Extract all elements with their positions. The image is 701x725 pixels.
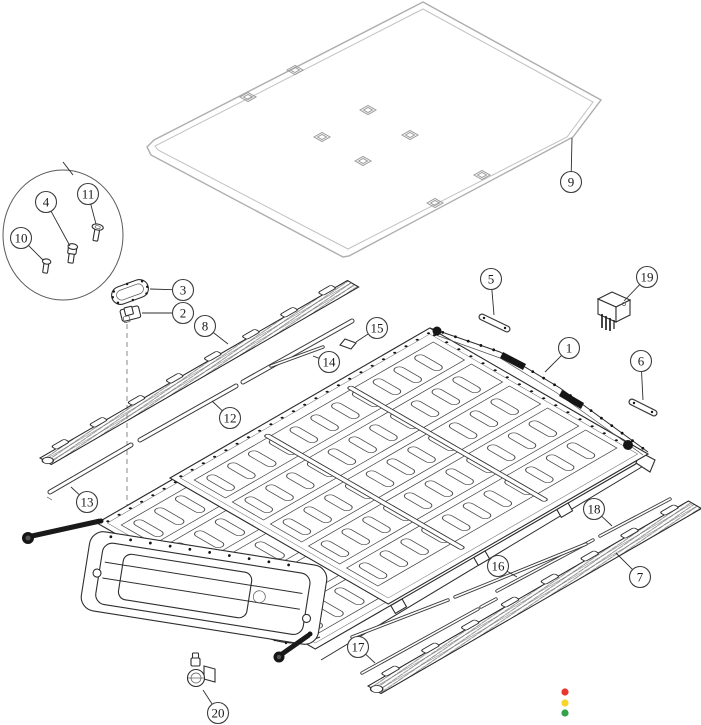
callout-13: 13 — [71, 487, 98, 513]
callout-number: 17 — [352, 640, 366, 655]
callout-number: 5 — [488, 272, 495, 287]
part-3-gasket — [109, 276, 152, 307]
callout-number: 9 — [568, 175, 575, 190]
part-20-valve — [188, 653, 216, 687]
callout-number: 13 — [81, 495, 94, 510]
part-9-cover-panel — [147, 2, 601, 257]
callout-number: 3 — [180, 283, 187, 298]
callout-number: 19 — [641, 270, 654, 285]
callout-2: 2 — [142, 303, 194, 324]
callout-18: 18 — [584, 499, 613, 527]
callout-9: 9 — [561, 138, 582, 193]
callout-1: 1 — [545, 338, 580, 373]
callout-number: 4 — [43, 195, 50, 210]
callout-number: 20 — [212, 706, 225, 721]
exploded-diagram: 1234567891011121314151617181920 — [0, 0, 701, 725]
callout-number: 6 — [638, 354, 645, 369]
green-dot-icon — [561, 709, 568, 716]
callout-number: 8 — [202, 319, 209, 334]
callout-7: 7 — [616, 553, 651, 588]
callout-10: 10 — [11, 228, 44, 261]
callout-number: 7 — [637, 570, 644, 585]
callout-5: 5 — [481, 269, 502, 316]
callout-number: 10 — [15, 231, 28, 246]
callout-number: 1 — [566, 341, 573, 356]
callout-number: 16 — [492, 559, 506, 574]
part-15-small-plate — [340, 339, 356, 349]
callout-number: 11 — [82, 187, 95, 202]
callout-12: 12 — [212, 401, 241, 429]
part-6-bracket — [632, 402, 654, 413]
screw-11 — [90, 223, 104, 242]
status-dots — [561, 688, 568, 716]
callout-number: 14 — [323, 355, 337, 370]
yellow-dot-icon — [561, 699, 568, 706]
exploded-diagram-page: 1234567891011121314151617181920 — [0, 0, 701, 725]
screw-10 — [41, 258, 51, 273]
screw-4 — [66, 243, 78, 263]
callout-number: 12 — [224, 411, 237, 426]
callout-6: 6 — [631, 351, 652, 401]
part-2-clamp — [119, 305, 141, 324]
part-19-connector-block — [598, 292, 630, 331]
callout-8: 8 — [195, 316, 229, 345]
red-dot-icon — [561, 688, 568, 695]
cover-clip-holes — [240, 66, 490, 208]
part-5-bracket — [482, 317, 507, 329]
callout-17: 17 — [348, 637, 376, 664]
callout-19: 19 — [624, 267, 658, 302]
callout-number: 2 — [180, 306, 187, 321]
callout-15: 15 — [356, 318, 388, 343]
callout-3: 3 — [150, 280, 194, 301]
callout-11: 11 — [78, 184, 99, 225]
callout-20: 20 — [203, 690, 229, 724]
callout-4: 4 — [36, 192, 71, 247]
callout-number: 15 — [371, 321, 384, 336]
callout-14: 14 — [313, 352, 340, 373]
callout-number: 18 — [588, 502, 601, 517]
